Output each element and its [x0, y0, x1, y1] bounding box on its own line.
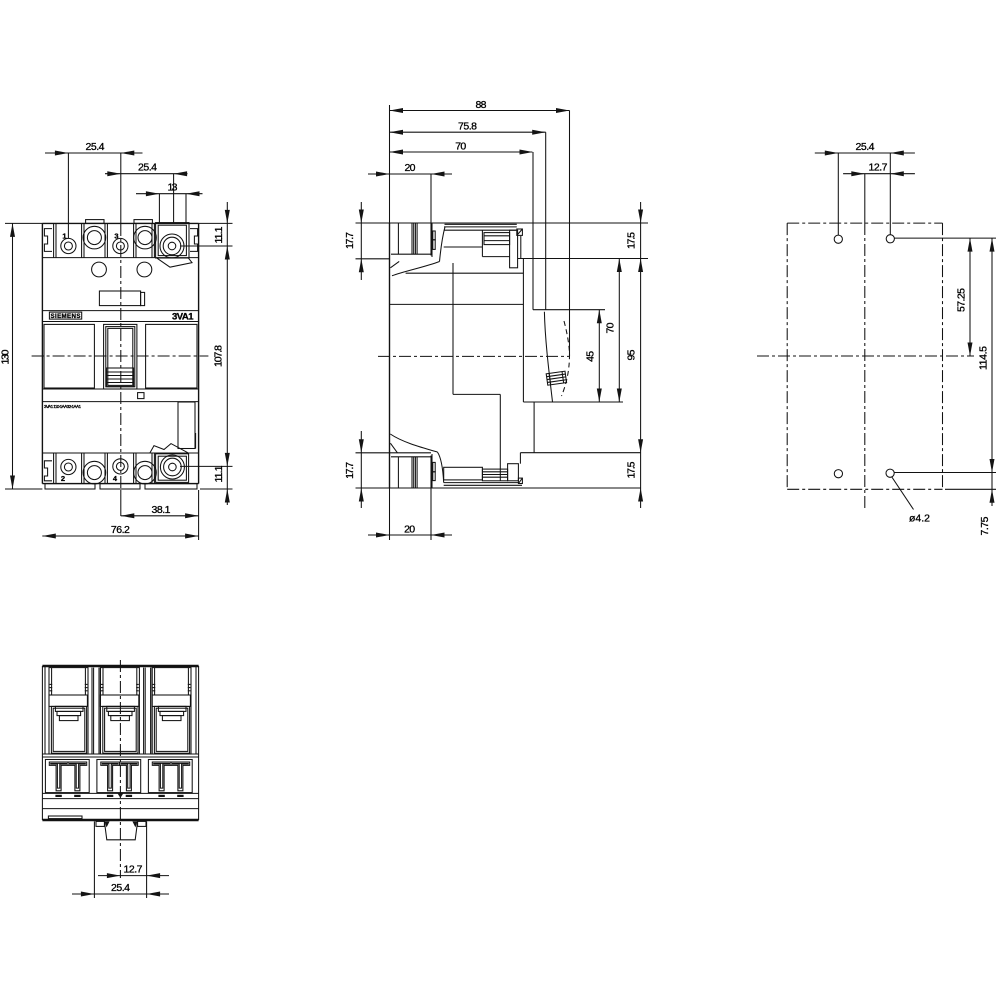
svg-text:13: 13 — [168, 182, 178, 194]
svg-text:3VA1 110-1AA32-1AA1: 3VA1 110-1AA32-1AA1 — [44, 404, 81, 409]
svg-text:7.75: 7.75 — [979, 516, 991, 535]
svg-text:75.8: 75.8 — [458, 121, 477, 133]
svg-text:25.4: 25.4 — [138, 162, 157, 174]
svg-text:114.5: 114.5 — [978, 346, 990, 370]
svg-text:17.7: 17.7 — [344, 232, 356, 249]
svg-text:1: 1 — [62, 232, 66, 241]
svg-text:107.8: 107.8 — [213, 345, 225, 367]
svg-text:SIEMENS: SIEMENS — [51, 313, 81, 320]
svg-text:2: 2 — [61, 474, 65, 483]
svg-text:25.4: 25.4 — [111, 882, 130, 894]
svg-text:3VA1: 3VA1 — [172, 311, 194, 322]
svg-text:25.4: 25.4 — [856, 141, 875, 153]
svg-text:17.5: 17.5 — [626, 232, 638, 249]
svg-text:11.1: 11.1 — [213, 226, 225, 243]
svg-text:25.4: 25.4 — [86, 141, 105, 153]
svg-text:20: 20 — [405, 162, 416, 174]
svg-text:11.1: 11.1 — [213, 465, 225, 482]
svg-text:70: 70 — [455, 140, 466, 152]
svg-text:70: 70 — [605, 322, 617, 333]
svg-text:20: 20 — [404, 523, 415, 535]
svg-text:57.25: 57.25 — [955, 288, 967, 312]
svg-text:38.1: 38.1 — [152, 504, 171, 516]
svg-text:45: 45 — [585, 351, 597, 362]
svg-text:17.7: 17.7 — [344, 462, 356, 479]
svg-text:95: 95 — [626, 349, 638, 360]
svg-text:12.7: 12.7 — [124, 864, 143, 876]
svg-text:17.5: 17.5 — [626, 461, 638, 478]
svg-text:ø4.2: ø4.2 — [909, 513, 930, 525]
svg-text:88: 88 — [476, 99, 487, 111]
svg-text:12.7: 12.7 — [869, 162, 888, 174]
svg-text:4: 4 — [113, 474, 118, 483]
svg-text:3: 3 — [114, 232, 118, 241]
svg-text:76.2: 76.2 — [111, 524, 130, 536]
svg-text:130: 130 — [0, 349, 12, 364]
